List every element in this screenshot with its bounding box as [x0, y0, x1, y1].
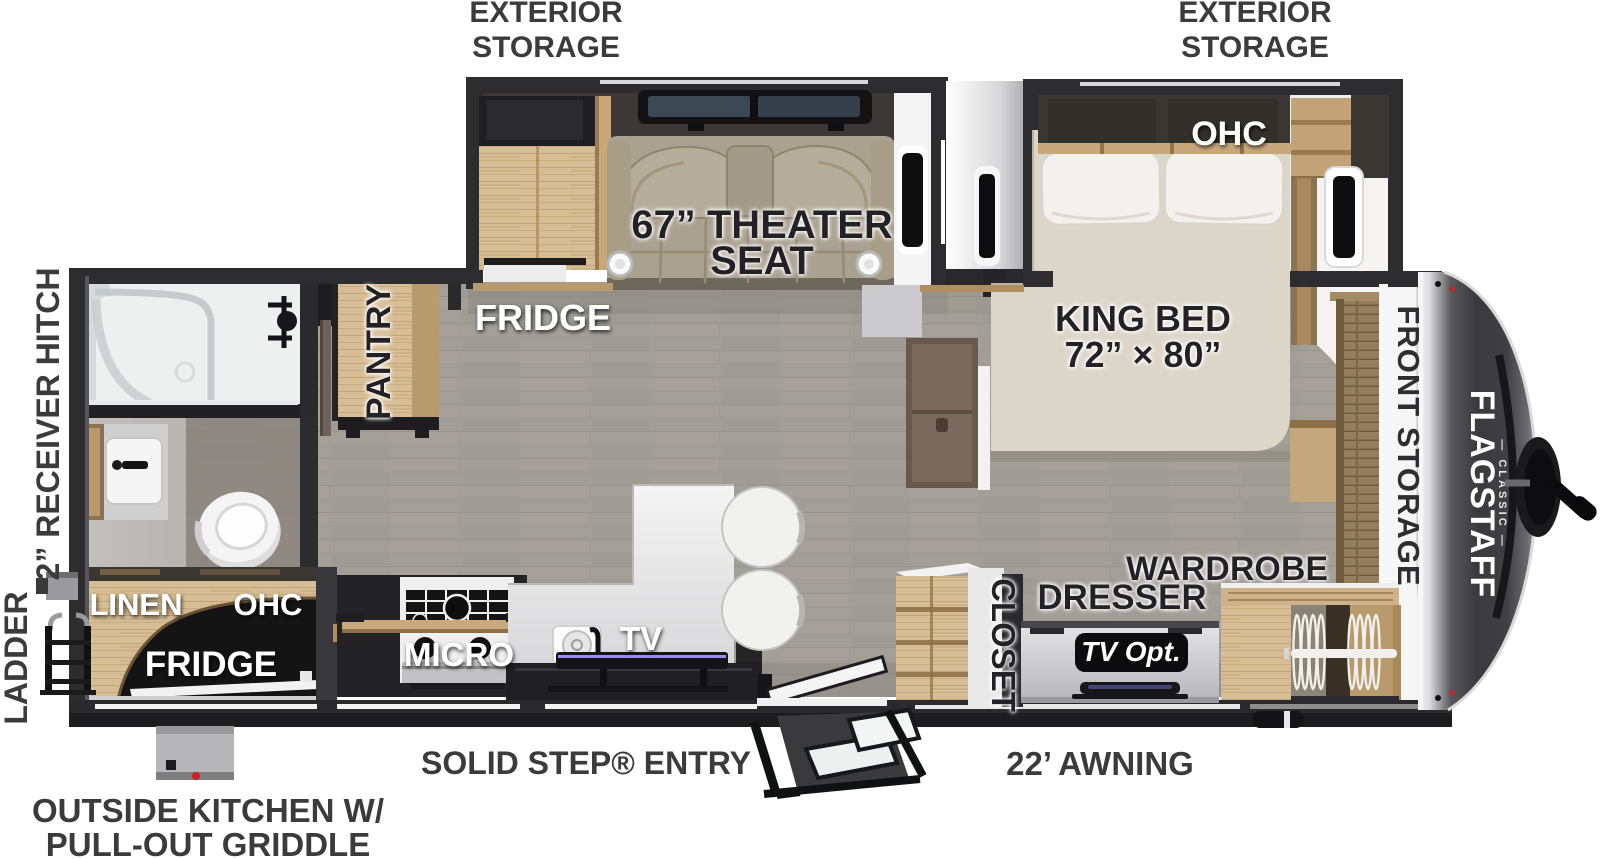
svg-text:KING BED: KING BED — [1055, 298, 1231, 339]
svg-text:FRIDGE: FRIDGE — [475, 297, 611, 338]
svg-text:MICRO: MICRO — [404, 636, 514, 673]
svg-text:TV: TV — [620, 620, 662, 657]
svg-text:22’ AWNING: 22’ AWNING — [1006, 745, 1194, 782]
svg-text:EXTERIOR: EXTERIOR — [1178, 0, 1332, 29]
svg-text:WARDROBE: WARDROBE — [1126, 550, 1328, 588]
svg-text:EXTERIOR: EXTERIOR — [469, 0, 623, 29]
svg-text:OHC: OHC — [234, 587, 303, 622]
svg-text:FRONT STORAGE: FRONT STORAGE — [1391, 305, 1426, 586]
svg-text:PANTRY: PANTRY — [360, 284, 398, 420]
svg-text:OUTSIDE KITCHEN W/: OUTSIDE KITCHEN W/ — [32, 792, 384, 829]
svg-text:FLAGSTAFF: FLAGSTAFF — [1463, 390, 1501, 599]
svg-text:TV Opt.: TV Opt. — [1081, 636, 1181, 667]
svg-text:SOLID STEP® ENTRY: SOLID STEP® ENTRY — [421, 745, 751, 781]
svg-text:OHC: OHC — [1191, 115, 1267, 153]
svg-text:STORAGE: STORAGE — [1181, 31, 1329, 64]
svg-text:2” RECEIVER HITCH: 2” RECEIVER HITCH — [30, 268, 66, 581]
svg-text:— CLASSIC —: — CLASSIC — — [1496, 439, 1508, 548]
svg-text:SEAT: SEAT — [710, 239, 814, 283]
svg-text:LINEN: LINEN — [90, 587, 183, 622]
svg-text:72” × 80”: 72” × 80” — [1064, 334, 1221, 375]
svg-text:LADDER: LADDER — [0, 591, 34, 724]
svg-text:PULL-OUT GRIDDLE: PULL-OUT GRIDDLE — [46, 826, 370, 859]
svg-text:STORAGE: STORAGE — [472, 31, 620, 64]
svg-text:FRIDGE: FRIDGE — [145, 645, 277, 684]
svg-text:CLOSET: CLOSET — [985, 578, 1022, 712]
